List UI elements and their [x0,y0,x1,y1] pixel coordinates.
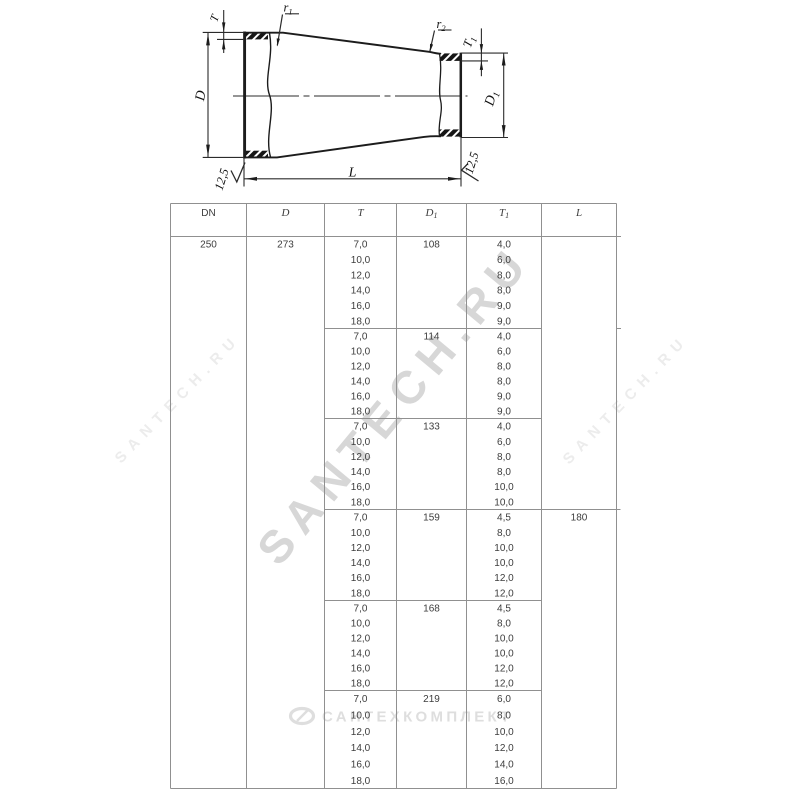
svg-text:12,0: 12,0 [494,573,514,584]
svg-text:9,0: 9,0 [497,407,511,418]
svg-text:12,0: 12,0 [351,452,371,463]
svg-text:250: 250 [200,240,217,251]
svg-text:273: 273 [277,240,294,251]
svg-text:114: 114 [424,332,440,343]
svg-text:10,0: 10,0 [351,255,371,266]
svg-text:T: T [357,207,364,219]
svg-text:159: 159 [423,513,440,524]
svg-text:16,0: 16,0 [351,664,371,675]
svg-text:12,0: 12,0 [351,634,371,645]
svg-text:12,0: 12,0 [351,543,371,554]
svg-text:9,0: 9,0 [497,392,511,403]
svg-text:7,0: 7,0 [354,240,368,251]
svg-text:7,0: 7,0 [354,513,368,524]
svg-text:16,0: 16,0 [351,301,371,312]
svg-text:108: 108 [423,240,440,251]
svg-text:8,0: 8,0 [497,286,511,297]
svg-text:14,0: 14,0 [351,377,371,388]
svg-text:18,0: 18,0 [351,407,371,418]
svg-text:10,0: 10,0 [494,649,514,660]
svg-text:L: L [348,166,357,181]
svg-text:16,0: 16,0 [351,573,371,584]
svg-text:8,0: 8,0 [497,362,511,373]
svg-text:D: D [281,207,290,219]
svg-text:10,0: 10,0 [494,543,514,554]
svg-text:8,0: 8,0 [497,467,511,478]
svg-text:7,0: 7,0 [354,332,368,343]
svg-text:10,0: 10,0 [351,347,371,358]
svg-text:12,0: 12,0 [494,743,514,754]
svg-text:6,0: 6,0 [497,437,511,448]
svg-text:9,0: 9,0 [497,301,511,312]
svg-text:12,0: 12,0 [351,270,371,281]
svg-text:8,0: 8,0 [497,377,511,388]
svg-text:10,0: 10,0 [494,482,514,493]
svg-text:168: 168 [423,604,440,615]
svg-text:10,0: 10,0 [494,497,514,508]
svg-text:14,0: 14,0 [351,558,371,569]
svg-text:8,0: 8,0 [497,528,511,539]
svg-text:14,0: 14,0 [351,286,371,297]
svg-text:18,0: 18,0 [351,679,371,690]
svg-text:9,0: 9,0 [497,316,511,327]
svg-text:133: 133 [423,422,440,433]
svg-text:L: L [575,207,582,219]
svg-text:8,0: 8,0 [497,619,511,630]
svg-text:8,0: 8,0 [497,452,511,463]
svg-text:12,0: 12,0 [494,664,514,675]
svg-text:14,0: 14,0 [494,760,514,771]
svg-text:12,0: 12,0 [494,679,514,690]
svg-text:10,0: 10,0 [494,558,514,569]
svg-text:12,0: 12,0 [351,727,371,738]
svg-text:12,0: 12,0 [494,588,514,599]
svg-text:14,0: 14,0 [351,649,371,660]
svg-text:10,0: 10,0 [494,634,514,645]
svg-text:18,0: 18,0 [351,776,371,787]
svg-text:6,0: 6,0 [497,255,511,266]
svg-text:4,0: 4,0 [497,240,511,251]
svg-text:6,0: 6,0 [497,347,511,358]
svg-text:10,0: 10,0 [351,619,371,630]
svg-text:180: 180 [571,513,588,524]
svg-text:7,0: 7,0 [354,694,368,705]
svg-text:4,0: 4,0 [497,422,511,433]
svg-text:219: 219 [423,694,440,705]
svg-text:8,0: 8,0 [497,270,511,281]
svg-text:4,5: 4,5 [497,604,511,615]
svg-text:6,0: 6,0 [497,694,511,705]
svg-text:14,0: 14,0 [351,743,371,754]
svg-text:4,0: 4,0 [497,332,511,343]
svg-text:7,0: 7,0 [354,604,368,615]
svg-text:4,5: 4,5 [497,513,511,524]
svg-text:18,0: 18,0 [351,497,371,508]
svg-text:14,0: 14,0 [351,467,371,478]
svg-text:16,0: 16,0 [351,482,371,493]
svg-text:10,0: 10,0 [351,437,371,448]
svg-text:18,0: 18,0 [351,316,371,327]
svg-text:16,0: 16,0 [494,776,514,787]
svg-text:10,0: 10,0 [351,711,371,722]
svg-text:10,0: 10,0 [494,727,514,738]
svg-text:16,0: 16,0 [351,392,371,403]
svg-text:10,0: 10,0 [351,528,371,539]
svg-text:18,0: 18,0 [351,588,371,599]
svg-text:7,0: 7,0 [354,422,368,433]
svg-text:16,0: 16,0 [351,760,371,771]
svg-text:8,0: 8,0 [497,711,511,722]
svg-text:12,0: 12,0 [351,362,371,373]
svg-text:DN: DN [201,208,215,219]
